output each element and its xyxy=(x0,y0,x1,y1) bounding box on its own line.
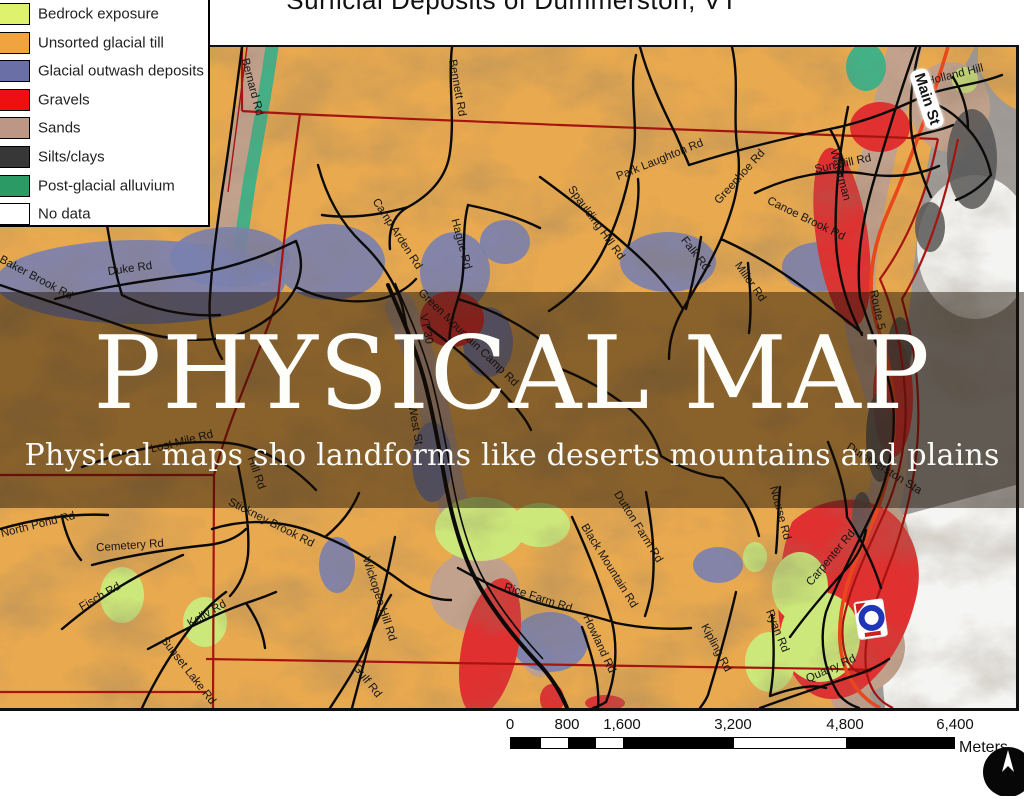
map-legend: Bedrock exposureUnsorted glacial tillGla… xyxy=(0,0,210,227)
legend-item: Gravels xyxy=(0,89,208,111)
legend-swatch xyxy=(0,117,30,139)
scale-segment xyxy=(596,738,623,748)
scale-tick-label: 6,400 xyxy=(936,716,974,733)
road-label: Howland Rd xyxy=(580,613,617,675)
slide-subheading: Physical maps sho landforms like deserts… xyxy=(24,438,999,473)
road-label: Holland Hill xyxy=(925,62,984,88)
scale-segment xyxy=(623,738,734,748)
slide-overlay-band: PHYSICAL MAP Physical maps sho landforms… xyxy=(0,292,1024,508)
scale-segment xyxy=(846,738,954,748)
north-arrow-icon xyxy=(982,744,1024,796)
scale-segment xyxy=(734,738,846,748)
road-label: Sunset Lake Rd xyxy=(158,635,218,707)
road-label: Carpenter Rd xyxy=(804,528,858,589)
scale-tick-label: 3,200 xyxy=(714,716,752,733)
legend-label: No data xyxy=(38,206,91,223)
scale-bar-segments xyxy=(510,737,955,749)
scale-segment xyxy=(541,738,568,748)
road-label: Duke Rd xyxy=(107,260,153,278)
legend-item: Bedrock exposure xyxy=(0,3,208,25)
road-label: Kipling Rd xyxy=(698,622,733,674)
logo-marker xyxy=(853,598,889,644)
legend-swatch xyxy=(0,203,30,225)
legend-swatch xyxy=(0,89,30,111)
scale-tick-label: 800 xyxy=(554,716,579,733)
legend-swatch xyxy=(0,3,30,25)
legend-item: Silts/clays xyxy=(0,146,208,168)
scale-segment xyxy=(511,738,541,748)
legend-swatch xyxy=(0,32,30,54)
legend-item: Glacial outwash deposits xyxy=(0,60,208,82)
road-label: North Pond Rd xyxy=(0,510,76,540)
legend-label: Glacial outwash deposits xyxy=(38,63,204,80)
legend-label: Silts/clays xyxy=(38,149,105,166)
road-label: Hague Rd xyxy=(449,217,474,270)
legend-swatch xyxy=(0,146,30,168)
legend-label: Bedrock exposure xyxy=(38,6,159,23)
legend-item: No data xyxy=(0,203,208,225)
legend-label: Unsorted glacial till xyxy=(38,34,164,51)
road-label: Spaulding Hill Rd xyxy=(565,184,627,262)
scale-segment xyxy=(568,738,596,748)
road-label: Cemetery Rd xyxy=(96,538,164,555)
scale-tick-label: 0 xyxy=(506,716,514,733)
road-label: Camp Arden Rd xyxy=(370,196,425,271)
legend-item: Sands xyxy=(0,117,208,139)
road-label: Rice Farm Rd xyxy=(502,581,573,614)
road-label: Ryan Rd xyxy=(763,608,791,654)
legend-item: Unsorted glacial till xyxy=(0,32,208,54)
scale-tick-label: 4,800 xyxy=(826,716,864,733)
road-label: Canoe Brook Rd xyxy=(765,195,847,243)
slide-heading: PHYSICAL MAP xyxy=(93,323,931,424)
road-label: Park Laughton Rd xyxy=(615,137,705,183)
legend-label: Post-glacial alluvium xyxy=(38,177,175,194)
road-label: Gulf Rd xyxy=(350,662,383,700)
road-label: Fisch Rd xyxy=(77,580,122,613)
legend-label: Sands xyxy=(38,120,81,137)
scale-bar: 08001,6003,2004,8006,400 Meters xyxy=(0,712,1024,768)
scale-tick-label: 1,600 xyxy=(603,716,641,733)
road-label: Wickopee Hill Rd xyxy=(360,556,398,643)
legend-swatch xyxy=(0,175,30,197)
legend-item: Post-glacial alluvium xyxy=(0,175,208,197)
road-label: Bennett Rd xyxy=(446,59,468,118)
road-label: Kelly Rd xyxy=(185,598,228,630)
road-label: Greenhoe Rd xyxy=(712,147,767,206)
legend-swatch xyxy=(0,60,30,82)
road-label: Bernard Rd xyxy=(239,57,266,117)
road-label: Quarry Rd xyxy=(804,653,857,686)
legend-label: Gravels xyxy=(38,91,90,108)
road-label: Falk Rd xyxy=(678,235,712,274)
road-label: Black Mountain Rd xyxy=(578,522,639,610)
